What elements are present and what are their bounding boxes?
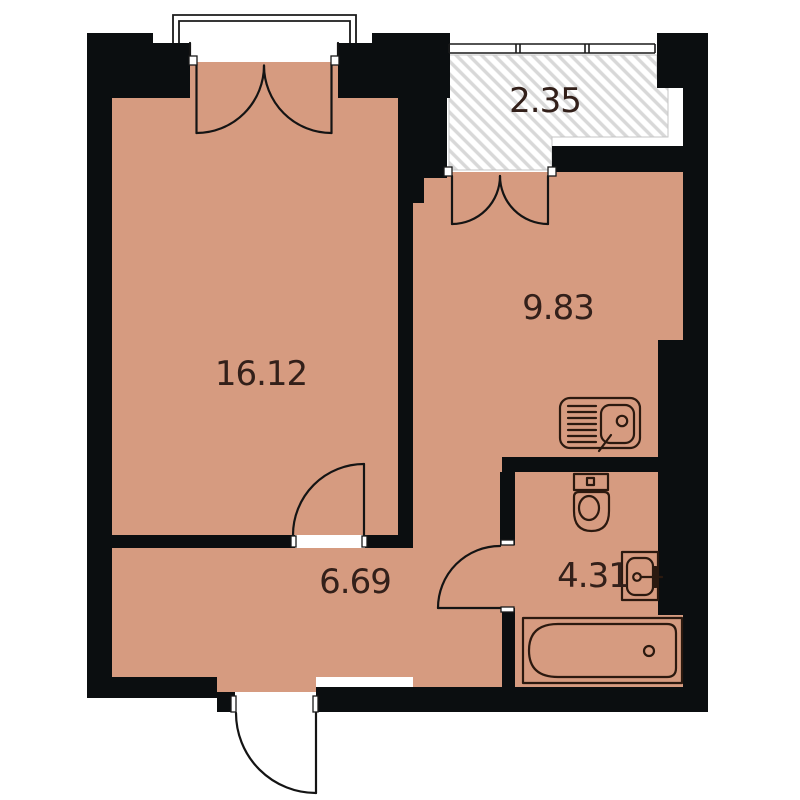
- door-jamb-left: [291, 536, 296, 547]
- door-jamb-left: [189, 56, 197, 65]
- kitchen-area-label: 9.83: [522, 288, 594, 328]
- wall-center-vertical: [398, 98, 413, 548]
- door-entry: [231, 696, 318, 793]
- balcony-area-label: 2.35: [509, 81, 581, 121]
- wall-bathroom-left-upper: [500, 472, 515, 545]
- bathroom-door-gap-floor: [498, 545, 515, 608]
- door-jamb-left: [444, 167, 452, 176]
- wall-top-left-b: [153, 43, 190, 98]
- wall-top-mid-a: [338, 43, 372, 98]
- wall-right-middle: [658, 340, 708, 615]
- balcony-window: [449, 44, 655, 53]
- wall-bottom-left: [87, 677, 217, 698]
- entry-threshold-floor: [217, 677, 316, 692]
- door-jamb-left: [231, 696, 236, 712]
- door-swing: [236, 713, 316, 793]
- door-jamb-right: [362, 536, 367, 547]
- wall-center-upper-thick: [413, 98, 447, 178]
- washbasin-faucet: [652, 566, 658, 588]
- door-jamb-top: [501, 540, 514, 545]
- wall-right-upper: [683, 77, 708, 340]
- floor-plan-page: 16.12 9.83 2.35 6.69 4.31: [0, 0, 800, 800]
- door-jamb-right: [331, 56, 339, 65]
- wall-center-step: [413, 178, 424, 203]
- door-jamb-bottom: [501, 607, 514, 612]
- door-jamb-right: [313, 696, 318, 712]
- hallway-area-label: 6.69: [319, 562, 391, 602]
- railing-outer-line: [173, 15, 356, 43]
- wall-left: [87, 33, 112, 698]
- wall-top-mid-b: [372, 33, 450, 98]
- wall-bathroom-left-lower: [502, 608, 515, 687]
- wall-hallway-top-a: [112, 535, 295, 548]
- living-balcony-railing: [173, 15, 356, 43]
- wall-hallway-top-b: [365, 535, 398, 548]
- floor-plan: 16.12 9.83 2.35 6.69 4.31: [0, 0, 800, 800]
- door-jamb-right: [548, 167, 556, 176]
- wall-bathroom-top: [502, 457, 708, 472]
- wall-bottom-right: [316, 687, 708, 712]
- wall-top-left-a: [87, 33, 153, 98]
- bathroom-area-label: 4.31: [557, 556, 629, 596]
- railing-inner-line: [179, 21, 350, 43]
- living-room-area-label: 16.12: [215, 354, 307, 394]
